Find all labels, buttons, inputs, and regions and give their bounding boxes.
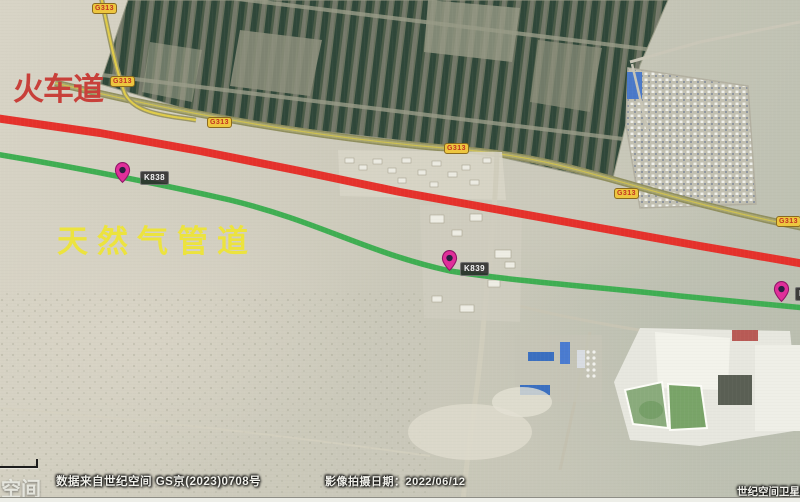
marker-label-k839: K839 <box>460 262 489 276</box>
road-shield-g313: G313 <box>614 188 639 199</box>
image-bottom-edge <box>0 497 800 502</box>
pipeline-label: 天然气管道 <box>57 226 257 257</box>
satellite-map: 火车道 天然气管道 G313 G313 G313 G313 G313 G313 … <box>0 0 800 502</box>
pond-area <box>614 328 800 446</box>
scale-bar <box>0 466 38 468</box>
town-area <box>626 22 800 208</box>
pin-icon <box>773 280 790 303</box>
road-shield-g313: G313 <box>444 143 469 154</box>
road-shield-g313: G313 <box>776 216 800 227</box>
map-pin-k8-edge <box>773 280 790 303</box>
pin-icon <box>114 161 131 184</box>
map-pin-k838 <box>114 161 131 184</box>
scale-bar-tick <box>36 459 38 468</box>
marker-label-k838: K838 <box>140 171 169 185</box>
railway-label: 火车道 <box>13 74 103 105</box>
road-shield-g313: G313 <box>207 117 232 128</box>
pin-icon <box>441 249 458 272</box>
road-shield-g313: G313 <box>110 76 135 87</box>
map-pin-k839 <box>441 249 458 272</box>
marker-label-k8-edge: K8 <box>795 287 800 301</box>
road-shield-g313: G313 <box>92 3 117 14</box>
data-source-credit: 数据来自世纪空间 GS京(2023)0708号 <box>56 473 261 489</box>
desert-scrub-area <box>0 290 430 500</box>
capture-date-credit: 影像拍摄日期：2022/06/12 <box>325 473 466 489</box>
